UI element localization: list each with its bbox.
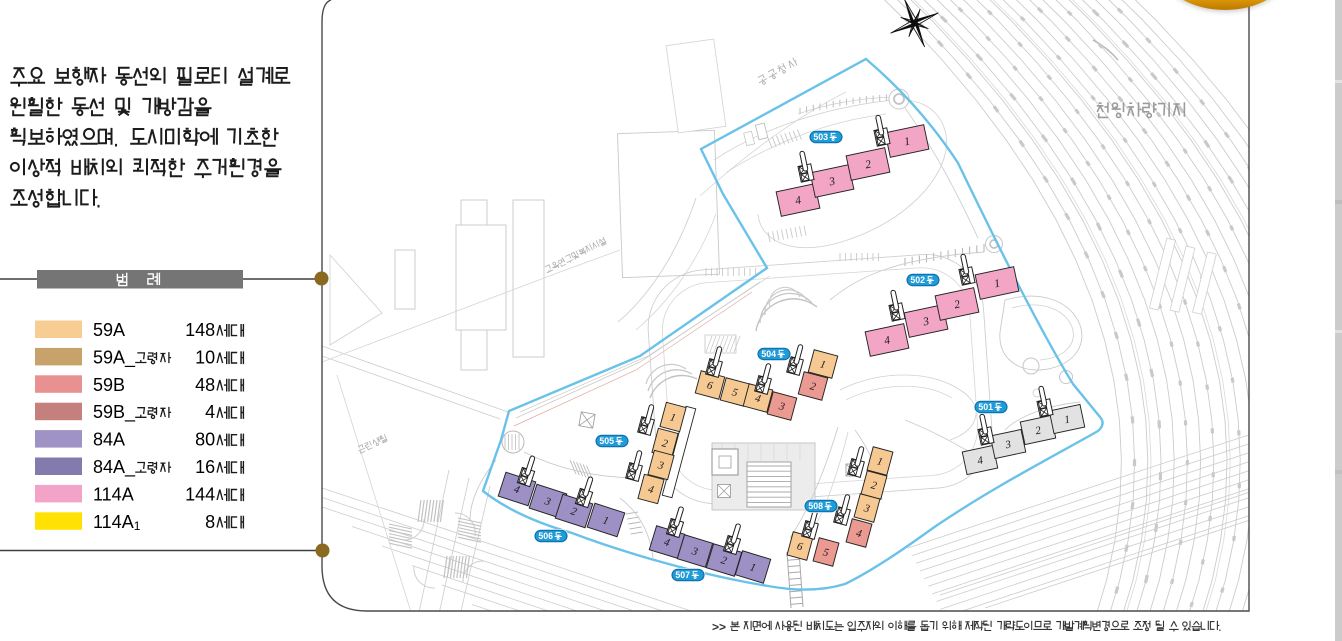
svg-text:501: 501 <box>978 402 993 412</box>
svg-text:48: 48 <box>195 375 215 395</box>
svg-text:59B: 59B <box>93 375 125 395</box>
svg-text:80: 80 <box>195 430 215 450</box>
svg-text:8: 8 <box>205 512 215 532</box>
svg-text:148: 148 <box>185 320 215 340</box>
svg-text:10: 10 <box>195 347 215 367</box>
svg-text:508: 508 <box>808 501 823 511</box>
svg-text:114A1: 114A1 <box>93 512 141 533</box>
svg-text:>>: >> <box>712 620 726 634</box>
svg-text:114A: 114A <box>93 484 134 504</box>
svg-text:506: 506 <box>538 531 553 541</box>
svg-text:504: 504 <box>761 349 776 359</box>
svg-text:59A_: 59A_ <box>93 347 136 368</box>
svg-text:503: 503 <box>813 132 828 142</box>
svg-text:505: 505 <box>599 436 614 446</box>
svg-text:16: 16 <box>195 457 215 477</box>
svg-text:84A_: 84A_ <box>93 457 136 478</box>
svg-text:4: 4 <box>205 402 215 422</box>
svg-text:502: 502 <box>910 275 925 285</box>
svg-text:507: 507 <box>675 570 690 580</box>
svg-text:59B_: 59B_ <box>93 402 136 423</box>
svg-text:59A: 59A <box>93 320 125 340</box>
svg-text:144: 144 <box>185 484 215 504</box>
svg-text:84A: 84A <box>93 430 125 450</box>
